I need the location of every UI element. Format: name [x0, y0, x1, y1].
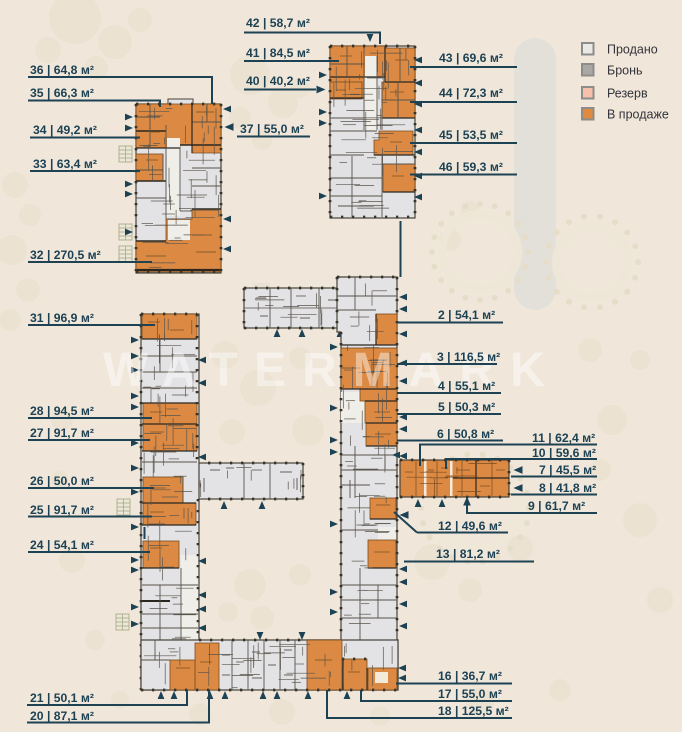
svg-text:25 | 91,7 м²: 25 | 91,7 м² — [30, 503, 94, 517]
svg-text:32 | 270,5 м²: 32 | 270,5 м² — [30, 248, 101, 262]
svg-text:9 | 61,7 м²: 9 | 61,7 м² — [528, 499, 585, 513]
svg-text:24 | 54,1 м²: 24 | 54,1 м² — [30, 538, 94, 552]
svg-text:20 | 87,1 м²: 20 | 87,1 м² — [30, 709, 94, 723]
svg-text:В продаже: В продаже — [607, 108, 669, 122]
svg-text:7 | 45,5 м²: 7 | 45,5 м² — [539, 463, 596, 477]
svg-text:21 | 50,1 м²: 21 | 50,1 м² — [30, 691, 94, 705]
svg-text:27 | 91,7 м²: 27 | 91,7 м² — [30, 426, 94, 440]
svg-text:8 | 41,8 м²: 8 | 41,8 м² — [539, 481, 596, 495]
svg-text:Бронь: Бронь — [607, 64, 643, 78]
svg-text:11 | 62,4 м²: 11 | 62,4 м² — [532, 431, 595, 445]
svg-text:17 | 55,0 м²: 17 | 55,0 м² — [438, 687, 502, 701]
svg-text:6 | 50,8 м²: 6 | 50,8 м² — [437, 427, 494, 441]
svg-text:44 | 72,3 м²: 44 | 72,3 м² — [439, 86, 503, 100]
svg-text:2 | 54,1 м²: 2 | 54,1 м² — [438, 308, 495, 322]
svg-text:31 | 96,9 м²: 31 | 96,9 м² — [30, 311, 94, 325]
svg-text:40 | 40,2 м²: 40 | 40,2 м² — [246, 74, 310, 88]
svg-text:35 | 66,3 м²: 35 | 66,3 м² — [30, 86, 94, 100]
svg-text:13 | 81,2 м²: 13 | 81,2 м² — [436, 547, 500, 561]
svg-text:4 | 55,1 м²: 4 | 55,1 м² — [438, 379, 495, 393]
svg-text:Резерв: Резерв — [607, 87, 648, 101]
svg-text:41 | 84,5 м²: 41 | 84,5 м² — [246, 46, 310, 60]
svg-text:43 | 69,6 м²: 43 | 69,6 м² — [439, 51, 503, 65]
svg-text:18 | 125,5 м²: 18 | 125,5 м² — [438, 704, 509, 718]
svg-text:26 | 50,0 м²: 26 | 50,0 м² — [30, 474, 94, 488]
svg-text:12 | 49,6 м²: 12 | 49,6 м² — [438, 519, 502, 533]
svg-text:Продано: Продано — [607, 43, 658, 57]
svg-text:10 | 59,6 м²: 10 | 59,6 м² — [532, 446, 596, 460]
svg-text:28 | 94,5 м²: 28 | 94,5 м² — [30, 404, 94, 418]
svg-text:37 | 55,0 м²: 37 | 55,0 м² — [240, 122, 304, 136]
svg-text:3 | 116,5 м²: 3 | 116,5 м² — [437, 350, 500, 364]
svg-text:16 | 36,7 м²: 16 | 36,7 м² — [438, 669, 502, 683]
svg-text:33 | 63,4 м²: 33 | 63,4 м² — [33, 157, 97, 171]
svg-text:34 | 49,2 м²: 34 | 49,2 м² — [33, 123, 97, 137]
svg-text:45 | 53,5 м²: 45 | 53,5 м² — [439, 128, 503, 142]
svg-text:36 | 64,8 м²: 36 | 64,8 м² — [30, 63, 94, 77]
svg-text:5 | 50,3 м²: 5 | 50,3 м² — [438, 400, 495, 414]
svg-text:46 | 59,3 м²: 46 | 59,3 м² — [439, 160, 503, 174]
svg-text:42 | 58,7 м²: 42 | 58,7 м² — [246, 16, 310, 30]
